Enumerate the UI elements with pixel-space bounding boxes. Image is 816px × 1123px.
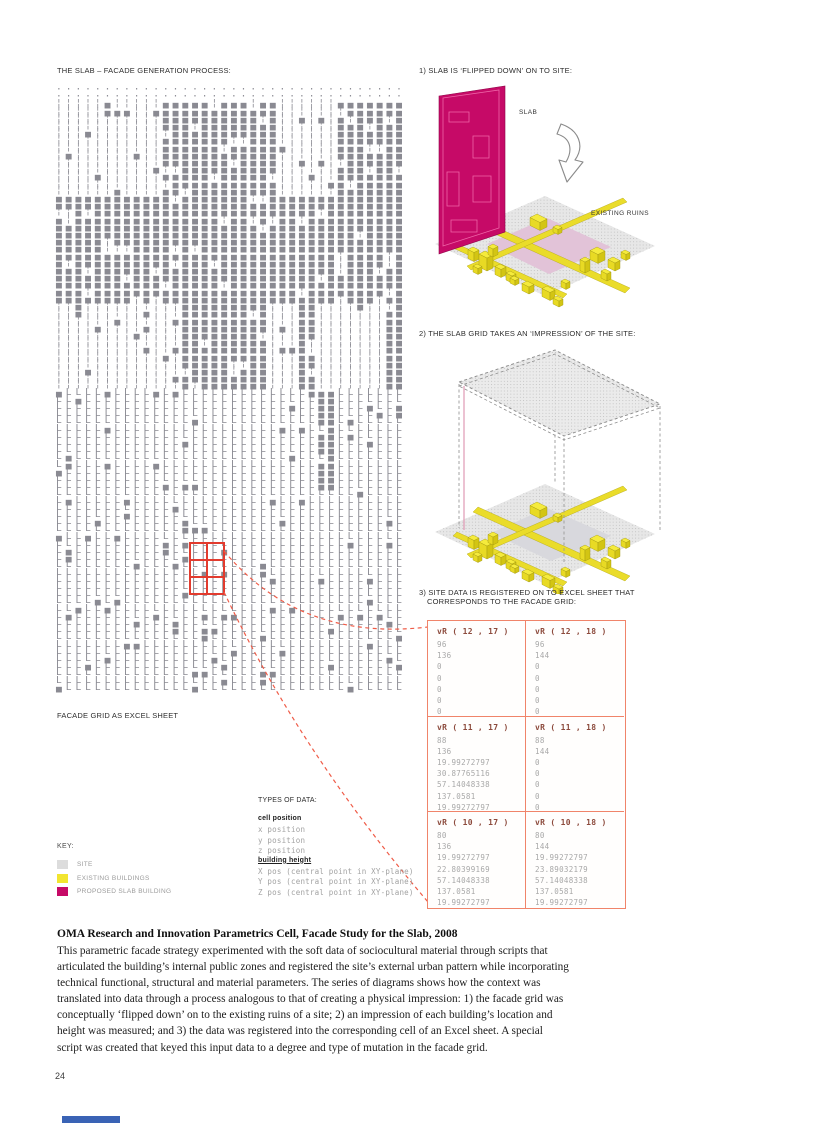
excel-cell-value: 30.87765116: [437, 768, 523, 779]
key-items: SITEEXISTING BUILDINGSPROPOSED SLAB BUIL…: [57, 860, 171, 896]
key-legend: KEY: SITEEXISTING BUILDINGSPROPOSED SLAB…: [57, 843, 171, 901]
highlight-cell: [190, 577, 207, 594]
process-heading: THE SLAB – FACADE GENERATION PROCESS:: [57, 66, 231, 75]
excel-cell-value: 19.99272797: [437, 802, 523, 812]
excel-cell-value: 0: [437, 695, 523, 706]
excel-cell-value: 0: [535, 706, 622, 716]
highlight-cell: [190, 543, 207, 560]
facade-grid-label: FACADE GRID AS EXCEL SHEET: [57, 711, 178, 720]
key-item-label: SITE: [77, 861, 93, 868]
excel-cell-value: 88: [437, 735, 523, 746]
excel-cell-value: 0: [535, 768, 622, 779]
excel-cell-value: 136: [437, 746, 523, 757]
types-of-data-list: cell positionx positiony positionz posit…: [258, 815, 433, 898]
excel-cell-value: 0: [535, 684, 622, 695]
existing-buildings-swatch-icon: [57, 874, 68, 883]
caption-body: This parametric facade strategy experime…: [57, 943, 570, 1056]
excel-cell-value: 57.14048338: [437, 875, 523, 886]
existing-ruins-label: EXISTING RUINS: [591, 210, 649, 217]
excel-cell-value: 137.0581: [535, 886, 622, 897]
excel-cell-value: 88: [535, 735, 622, 746]
excel-cell-value: 144: [535, 746, 622, 757]
excel-cell-header: vR ( 12 , 18 ): [535, 627, 622, 636]
flip-arrow-icon: [557, 124, 583, 182]
excel-cell-value: 0: [535, 802, 622, 812]
key-item: EXISTING BUILDINGS: [57, 874, 171, 883]
key-item: PROPOSED SLAB BUILDING: [57, 887, 171, 896]
caption: OMA Research and Innovation Parametrics …: [57, 928, 570, 1056]
excel-cell-value: 0: [535, 673, 622, 684]
excel-cell-value: 144: [535, 841, 622, 852]
highlight-cell: [207, 560, 224, 577]
excel-cell: vR ( 11 , 18 )8814400000: [526, 717, 624, 813]
step3-line2: CORRESPONDS TO THE FACADE GRID:: [419, 597, 635, 606]
highlight-cell: [207, 577, 224, 594]
diagram-step1: SLAB EXISTING RUINS: [415, 84, 805, 336]
excel-cell-value: 19.99272797: [437, 757, 523, 768]
excel-cell-value: 80: [437, 830, 523, 841]
types-of-data-item: y position: [258, 836, 433, 846]
excel-cell-value: 96: [437, 639, 523, 650]
highlight-cell: [207, 543, 224, 560]
types-of-data-item: z position: [258, 846, 433, 856]
types-of-data-item: Y pos (central point in XY-plane): [258, 877, 433, 887]
excel-cell-header: vR ( 11 , 18 ): [535, 723, 622, 732]
excel-cell-header: vR ( 11 , 17 ): [437, 723, 523, 732]
facade-grid: ···································· ···…: [56, 86, 406, 691]
excel-table: vR ( 12 , 17 )9613600000vR ( 12 , 18 )96…: [427, 620, 626, 909]
caption-title: OMA Research and Innovation Parametrics …: [57, 928, 570, 940]
excel-cell: vR ( 12 , 17 )9613600000: [428, 621, 526, 717]
excel-cell-value: 80: [535, 830, 622, 841]
excel-cell-value: 137.0581: [437, 886, 523, 897]
types-of-data-title: TYPES OF DATA:: [258, 797, 433, 804]
excel-cell-value: 23.89032179: [535, 864, 622, 875]
step2-heading: 2) THE SLAB GRID TAKES AN ‘IMPRESSION’ O…: [419, 329, 636, 338]
slab-label: SLAB: [519, 109, 537, 116]
excel-cell-value: 0: [535, 757, 622, 768]
excel-cell-value: 0: [437, 684, 523, 695]
excel-cell-value: 136: [437, 841, 523, 852]
types-of-data-item: building height: [258, 857, 433, 867]
excel-cell-value: 136: [437, 650, 523, 661]
site-plane: [435, 484, 655, 586]
step1-heading: 1) SLAB IS ‘FLIPPED DOWN’ ON TO SITE:: [419, 66, 572, 75]
excel-cell-value: 57.14048338: [437, 779, 523, 790]
site-swatch-icon: [57, 860, 68, 869]
excel-cell: vR ( 11 , 17 )8813619.9927279730.8776511…: [428, 717, 526, 813]
excel-cell-value: 57.14048338: [535, 875, 622, 886]
excel-cell-header: vR ( 10 , 18 ): [535, 818, 622, 827]
step3-heading: 3) SITE DATA IS REGISTERED ON TO EXCEL S…: [419, 588, 635, 606]
proposed-slab-swatch-icon: [57, 887, 68, 896]
excel-cell-value: 0: [437, 661, 523, 672]
excel-cell-value: 19.99272797: [535, 852, 622, 863]
page-number: 24: [55, 1071, 65, 1081]
diagram-step2: [417, 342, 807, 594]
document-page: THE SLAB – FACADE GENERATION PROCESS: 1)…: [0, 0, 816, 1123]
excel-cell-value: 96: [535, 639, 622, 650]
excel-cell: vR ( 12 , 18 )9614400000: [526, 621, 624, 717]
highlight-cell: [190, 560, 207, 577]
key-title: KEY:: [57, 843, 171, 850]
excel-cell-value: 19.99272797: [535, 897, 622, 907]
types-of-data-item: Z pos (central point in XY-plane): [258, 888, 433, 898]
types-of-data-item: cell position: [258, 815, 433, 825]
types-of-data-item: X pos (central point in XY-plane): [258, 867, 433, 877]
excel-cell-value: 22.80399169: [437, 864, 523, 875]
key-item: SITE: [57, 860, 171, 869]
excel-cell-header: vR ( 10 , 17 ): [437, 818, 523, 827]
facade-grid-highlight: [189, 542, 225, 595]
excel-cell: vR ( 10 , 18 )8014419.9927279723.8903217…: [526, 812, 624, 908]
step3-line1: 3) SITE DATA IS REGISTERED ON TO EXCEL S…: [419, 588, 635, 597]
excel-cell-value: 144: [535, 650, 622, 661]
excel-cell-value: 0: [535, 661, 622, 672]
excel-cell-value: 0: [535, 695, 622, 706]
excel-cell: vR ( 10 , 17 )8013619.9927279722.8039916…: [428, 812, 526, 908]
slab-grid-plane: [459, 350, 660, 440]
excel-cell-value: 19.99272797: [437, 852, 523, 863]
types-of-data-item: x position: [258, 825, 433, 835]
excel-cell-value: 19.99272797: [437, 897, 523, 907]
key-item-label: PROPOSED SLAB BUILDING: [77, 888, 171, 895]
footer-blue-bar: [62, 1116, 120, 1123]
key-item-label: EXISTING BUILDINGS: [77, 875, 150, 882]
excel-cell-value: 0: [535, 779, 622, 790]
types-of-data: TYPES OF DATA: cell positionx positiony …: [258, 797, 433, 898]
excel-cell-value: 0: [535, 791, 622, 802]
excel-cell-value: 0: [437, 706, 523, 716]
excel-cell-value: 0: [437, 673, 523, 684]
slab-shape: [439, 86, 505, 254]
excel-cell-header: vR ( 12 , 17 ): [437, 627, 523, 636]
excel-cell-value: 137.0581: [437, 791, 523, 802]
